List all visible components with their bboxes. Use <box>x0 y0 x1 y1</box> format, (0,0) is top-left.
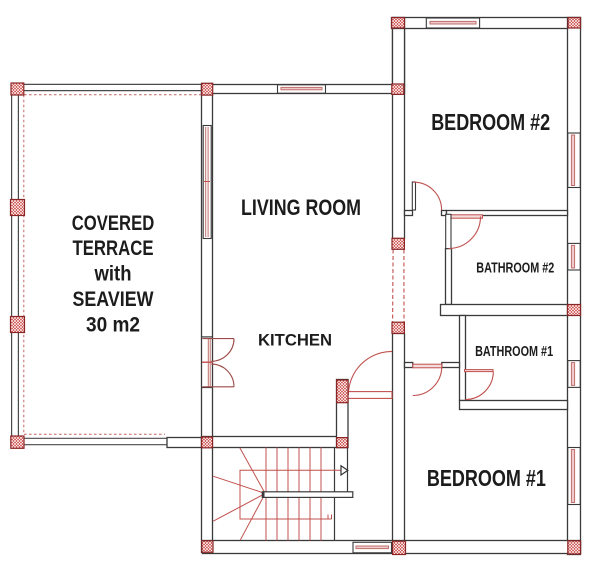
svg-text:TERRACE: TERRACE <box>73 236 154 260</box>
svg-text:BEDROOM #1: BEDROOM #1 <box>427 465 546 491</box>
svg-text:with: with <box>94 262 132 286</box>
svg-text:BATHROOM #2: BATHROOM #2 <box>476 261 554 277</box>
svg-text:BEDROOM #2: BEDROOM #2 <box>431 109 550 135</box>
svg-text:SEAVIEW: SEAVIEW <box>73 287 155 311</box>
svg-text:30 m2: 30 m2 <box>86 313 140 337</box>
svg-text:KITCHEN: KITCHEN <box>258 331 332 350</box>
svg-text:COVERED: COVERED <box>72 211 155 235</box>
svg-text:LIVING ROOM: LIVING ROOM <box>241 195 361 220</box>
svg-text:BATHROOM #1: BATHROOM #1 <box>475 344 553 360</box>
